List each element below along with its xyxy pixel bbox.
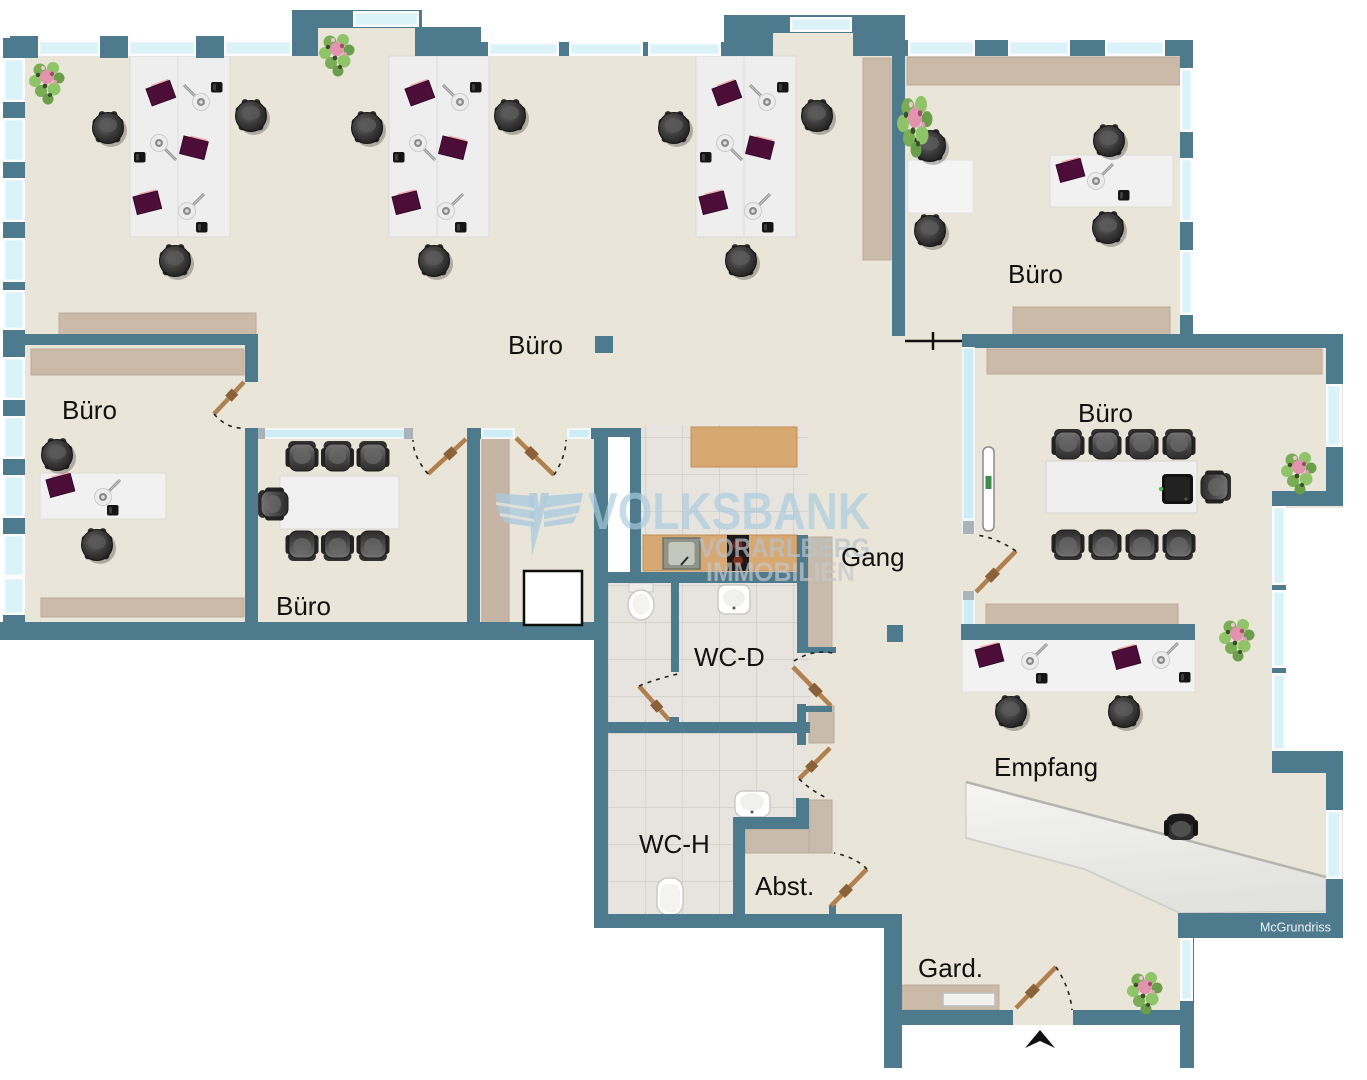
svg-text:WC-D: WC-D <box>694 642 765 672</box>
svg-text:Büro: Büro <box>62 395 117 425</box>
svg-text:Büro: Büro <box>276 591 331 621</box>
svg-text:WC-H: WC-H <box>639 829 710 859</box>
svg-text:Gard.: Gard. <box>918 953 983 983</box>
svg-text:Gang: Gang <box>841 542 905 572</box>
svg-text:Büro: Büro <box>508 330 563 360</box>
svg-text:McGrundriss: McGrundriss <box>1260 921 1331 935</box>
svg-text:IMMOBILIEN: IMMOBILIEN <box>706 557 855 587</box>
svg-text:Büro: Büro <box>1008 259 1063 289</box>
svg-text:Abst.: Abst. <box>755 871 814 901</box>
svg-text:Empfang: Empfang <box>994 752 1098 782</box>
svg-text:Büro: Büro <box>1078 398 1133 428</box>
